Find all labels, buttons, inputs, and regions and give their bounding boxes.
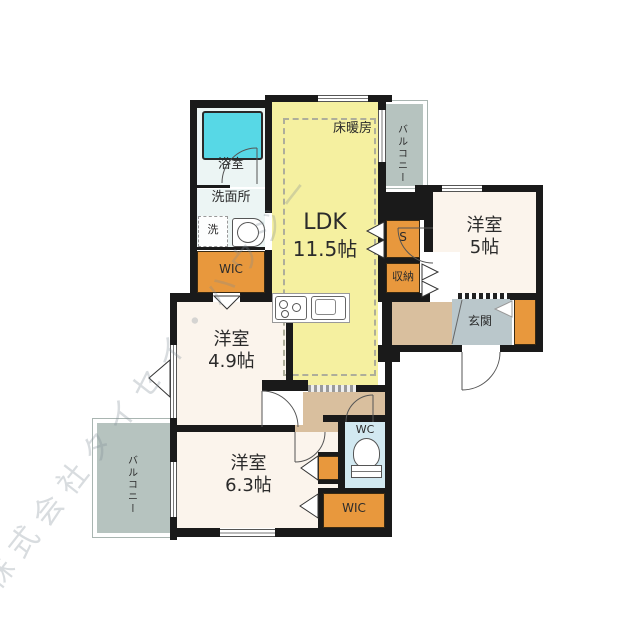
bedroom-south-label: 洋室 bbox=[177, 454, 320, 475]
bedroom-west-area-label: 4.9帖 bbox=[177, 352, 286, 373]
wall bbox=[482, 185, 543, 192]
ldk-hall-threshold bbox=[308, 385, 356, 392]
wall bbox=[378, 162, 386, 302]
wall bbox=[382, 293, 392, 352]
wall bbox=[385, 352, 392, 537]
wall bbox=[500, 345, 543, 352]
ldk-label: LDK bbox=[272, 210, 378, 235]
closet-storage-label: 収納 bbox=[386, 271, 420, 284]
bathtub bbox=[202, 111, 263, 160]
bedroom-south-window bbox=[220, 529, 275, 537]
bedroom-west-label: 洋室 bbox=[177, 330, 286, 351]
hallway bbox=[303, 392, 392, 415]
bedroom-east-area-label: 5帖 bbox=[433, 238, 536, 259]
balcony-top-label: バルコニー bbox=[395, 116, 407, 191]
wall bbox=[265, 250, 272, 298]
washroom-label: 洗面所 bbox=[192, 191, 270, 206]
wall bbox=[318, 480, 341, 484]
wall bbox=[170, 425, 295, 432]
wall bbox=[262, 380, 308, 391]
wall bbox=[170, 528, 220, 537]
entrance-door-arc bbox=[462, 352, 500, 390]
kitchen-sink-basin bbox=[315, 299, 336, 315]
vestibule bbox=[262, 391, 308, 428]
wic-top-label: WIC bbox=[197, 263, 265, 277]
wall bbox=[323, 415, 392, 422]
wall bbox=[382, 192, 427, 220]
wic-bottom-label: WIC bbox=[323, 502, 385, 516]
vanity-basin bbox=[237, 222, 259, 243]
toilet-tank bbox=[351, 465, 382, 478]
entrance-step-hatch bbox=[458, 293, 510, 299]
wall bbox=[510, 293, 536, 300]
hallway-door-gap bbox=[295, 425, 323, 432]
closet-s-label: S bbox=[386, 231, 420, 245]
shoe-cabinet bbox=[514, 299, 536, 345]
ldk-area-label: 11.5帖 bbox=[272, 238, 378, 261]
floor-heating-label: 床暖房 bbox=[286, 122, 372, 137]
wall bbox=[190, 100, 272, 108]
stove-burner bbox=[279, 300, 288, 309]
ldk-balcony-door bbox=[378, 110, 386, 162]
bath-label: 浴室 bbox=[197, 158, 265, 173]
wall bbox=[382, 258, 420, 263]
bedroom-south-area-label: 6.3帖 bbox=[177, 476, 320, 497]
bedroom-west-window-mark bbox=[149, 360, 170, 397]
wall bbox=[197, 247, 265, 250]
wall bbox=[424, 185, 433, 252]
toilet-bowl bbox=[353, 438, 380, 468]
wc-label: WC bbox=[345, 424, 385, 437]
wall bbox=[265, 95, 318, 102]
wall bbox=[392, 345, 462, 352]
washer-label: 洗 bbox=[198, 224, 228, 237]
stove-burner bbox=[292, 303, 301, 312]
wall bbox=[318, 488, 392, 493]
wall bbox=[170, 293, 177, 345]
wall bbox=[197, 185, 230, 188]
bedroom-west-window bbox=[170, 345, 177, 418]
wall bbox=[378, 95, 386, 110]
ldk-top-window bbox=[318, 95, 368, 102]
wall bbox=[536, 185, 543, 352]
floor-plan: 浴室 洗面所 洗 WIC LDK 11.5帖 床暖房 バルコニー 洋室 5帖 S… bbox=[0, 0, 640, 640]
entrance-label: 玄関 bbox=[452, 315, 508, 329]
wall bbox=[318, 452, 341, 456]
bedroom-east-label: 洋室 bbox=[433, 216, 536, 237]
entrance-hall bbox=[392, 302, 460, 345]
stove-burner bbox=[281, 310, 289, 318]
wall bbox=[275, 528, 392, 537]
bedroom-east-window bbox=[442, 185, 482, 192]
balcony-west-label: バルコニー bbox=[125, 442, 137, 527]
bedroom-south-west-window bbox=[170, 462, 177, 517]
